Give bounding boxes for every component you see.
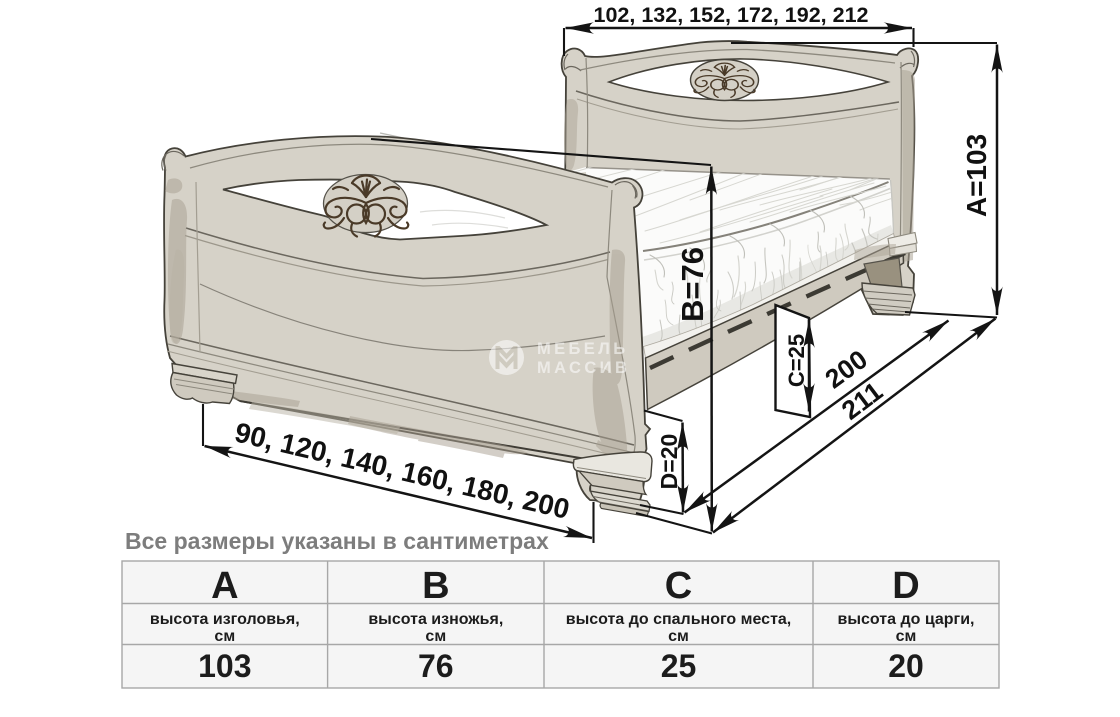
svg-text:МЕБЕЛЬ: МЕБЕЛЬ — [537, 340, 628, 358]
svg-text:высота изголовья,: высота изголовья, — [150, 611, 300, 628]
svg-text:A: A — [211, 565, 238, 607]
svg-text:высота до спального места,: высота до спального места, — [566, 611, 792, 628]
svg-text:см: см — [214, 628, 235, 645]
svg-text:см: см — [668, 628, 689, 645]
svg-text:D=20: D=20 — [656, 434, 682, 490]
svg-text:высота до царги,: высота до царги, — [838, 611, 975, 628]
svg-text:102, 132, 152, 172, 192, 212: 102, 132, 152, 172, 192, 212 — [594, 3, 869, 27]
svg-text:см: см — [425, 628, 446, 645]
svg-text:D: D — [892, 565, 919, 607]
svg-text:20: 20 — [888, 648, 924, 684]
svg-text:МАССИВ: МАССИВ — [537, 359, 630, 377]
svg-text:высота изножья,: высота изножья, — [368, 611, 503, 628]
svg-text:см: см — [896, 628, 917, 645]
svg-text:103: 103 — [198, 648, 251, 684]
svg-text:76: 76 — [418, 648, 454, 684]
svg-text:B: B — [422, 565, 449, 607]
svg-text:Все размеры указаны в сантимет: Все размеры указаны в сантиметрах — [125, 528, 549, 554]
svg-text:C: C — [665, 565, 692, 607]
svg-text:C=25: C=25 — [784, 334, 809, 387]
svg-text:25: 25 — [661, 648, 697, 684]
svg-text:B=76: B=76 — [675, 247, 710, 322]
svg-text:A=103: A=103 — [961, 134, 992, 217]
